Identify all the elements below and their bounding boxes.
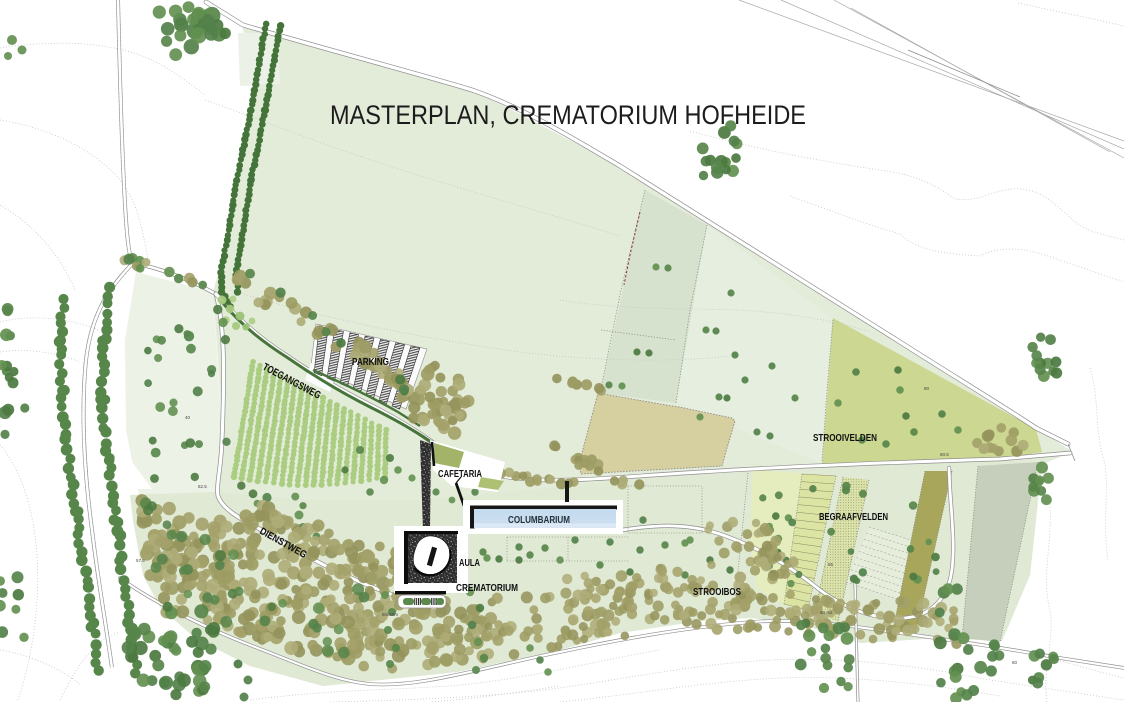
svg-text:COLUMBARIUM: COLUMBARIUM	[508, 514, 570, 526]
svg-text:MASTERPLAN, CREMATORIUM HOFHEI: MASTERPLAN, CREMATORIUM HOFHEIDE	[330, 100, 806, 130]
svg-text:BEGRAAFVELDEN: BEGRAAFVELDEN	[819, 511, 888, 523]
svg-text:CREMATORIUM: CREMATORIUM	[456, 582, 518, 594]
svg-text:STROOIBOS: STROOIBOS	[693, 587, 741, 598]
svg-text:50x50m: 50x50m	[382, 612, 398, 617]
svg-text:CAFETARIA: CAFETARIA	[438, 469, 482, 480]
svg-text:60.5: 60.5	[940, 452, 949, 457]
svg-text:40: 40	[185, 415, 191, 420]
svg-text:80: 80	[924, 386, 930, 391]
svg-text:65: 65	[828, 562, 834, 567]
svg-text:STROOIVELDEN: STROOIVELDEN	[813, 433, 877, 444]
svg-text:50 m2: 50 m2	[820, 610, 833, 615]
svg-text:57.5: 57.5	[136, 558, 145, 563]
svg-text:PARKING: PARKING	[352, 356, 389, 368]
svg-text:62.5: 62.5	[198, 484, 207, 489]
svg-text:AULA: AULA	[459, 557, 480, 569]
svg-text:60: 60	[1012, 660, 1018, 665]
